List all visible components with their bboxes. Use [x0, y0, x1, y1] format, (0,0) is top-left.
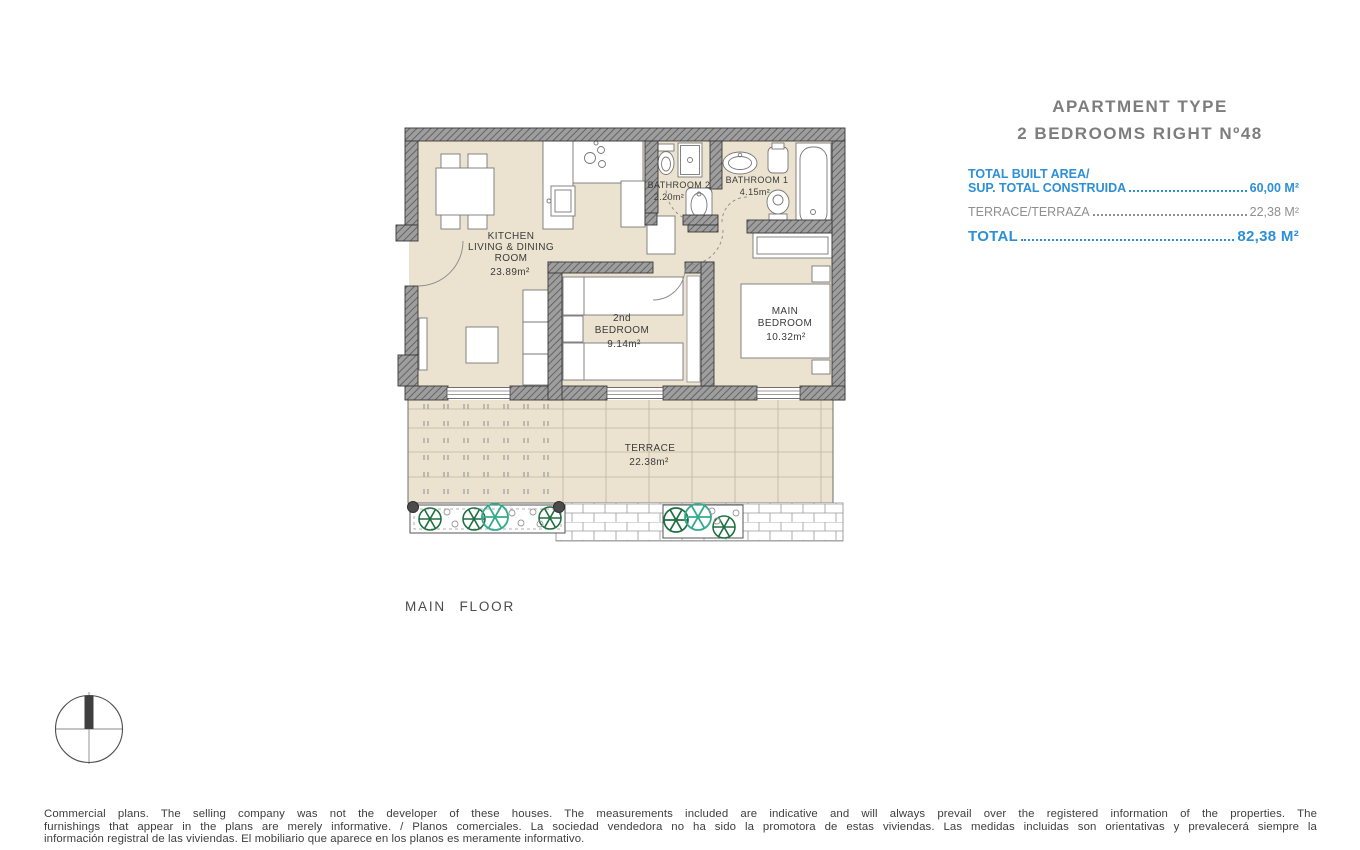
total-value: 82,38 M² — [1237, 228, 1299, 245]
terrace-area-label: 22.38m² — [629, 457, 669, 468]
floor-name-label: MAIN FLOOR — [405, 599, 515, 614]
title-block: APARTMENT TYPE 2 BEDROOMS RIGHT Nº48 — [960, 97, 1320, 144]
bedroom2-label-line1: 2nd — [613, 313, 631, 324]
disclaimer-text: Commercial plans. The selling company wa… — [44, 808, 1317, 846]
bathroom1-label: BATHROOM 1 — [726, 175, 789, 185]
disclaimer-line1: Commercial plans. The selling company wa… — [44, 808, 1317, 821]
bathroom2-area-label: 2.20m² — [654, 192, 684, 202]
total-label: TOTAL — [968, 228, 1018, 245]
kitchen-area-label: 23.89m² — [490, 267, 530, 278]
terrace-label: TERRACE — [625, 443, 676, 454]
bedroom2-area-label: 9.14m² — [607, 339, 641, 350]
built-area-label-en: TOTAL BUILT AREA/ — [968, 167, 1299, 181]
apartment-subtitle: 2 BEDROOMS RIGHT Nº48 — [960, 124, 1320, 144]
page: KITCHEN LIVING & DINING ROOM 23.89m² BAT… — [0, 0, 1360, 850]
dotted-leader — [1021, 239, 1234, 241]
disclaimer-line3: información registral de las viviendas. … — [44, 833, 1317, 846]
bathroom1-area-label: 4.15m² — [740, 187, 770, 197]
hall-door-leaf — [687, 276, 700, 382]
kitchen-label-line3: ROOM — [495, 253, 528, 264]
disclaimer-line2: furnishings that appear in the plans are… — [44, 821, 1317, 834]
built-area-row: SUP. TOTAL CONSTRUIDA 60,00 M² — [968, 181, 1299, 196]
bedroom2-label-line2: BEDROOM — [595, 325, 649, 336]
terrace-label: TERRACE/TERRAZA — [968, 205, 1090, 219]
built-area-label-es: SUP. TOTAL CONSTRUIDA — [968, 181, 1126, 196]
kitchen-label-line1: KITCHEN — [488, 231, 535, 242]
dotted-leader — [1129, 190, 1247, 192]
main-bedroom-label-line2: BEDROOM — [758, 318, 812, 329]
kitchen-label-line2: LIVING & DINING — [468, 242, 554, 253]
total-row: TOTAL 82,38 M² — [968, 228, 1299, 245]
dotted-leader — [1093, 214, 1247, 216]
north-compass-icon — [50, 688, 130, 772]
apartment-type-title: APARTMENT TYPE — [960, 97, 1320, 117]
built-area-value: 60,00 M² — [1250, 181, 1299, 196]
bathroom2-label: BATHROOM 2 — [648, 180, 711, 190]
main-bedroom-label-line1: MAIN — [772, 306, 799, 317]
main-bedroom-area-label: 10.32m² — [766, 332, 806, 343]
terrace-row: TERRACE/TERRAZA 22,38 M² — [968, 205, 1299, 219]
area-table: TOTAL BUILT AREA/ SUP. TOTAL CONSTRUIDA … — [968, 167, 1299, 245]
terrace-value: 22,38 M² — [1250, 205, 1299, 219]
